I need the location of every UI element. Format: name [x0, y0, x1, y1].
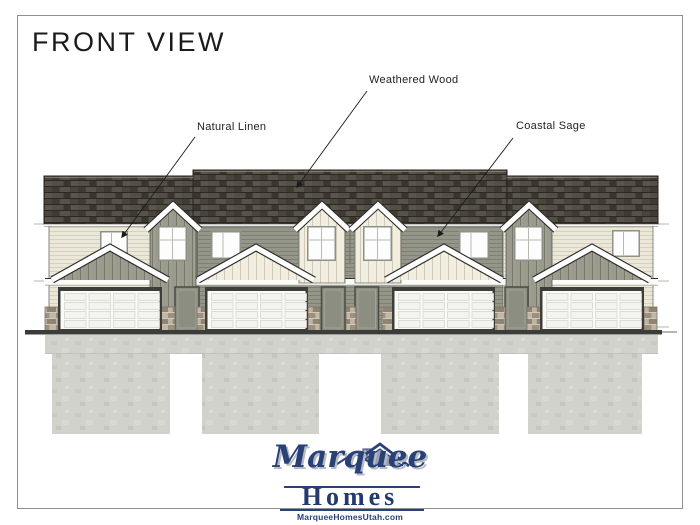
window-unit-4 [612, 230, 640, 257]
entry-door-unit-4 [505, 287, 528, 331]
garage-door-unit-2 [205, 287, 308, 331]
garage-door-unit-4 [540, 287, 644, 331]
garage-door-unit-3 [392, 287, 495, 331]
foundation-pads [45, 335, 658, 434]
drawing-sheet: FRONT VIEW Natural Linen Weathered Wood … [0, 0, 700, 525]
callout-label-weathered-wood: Weathered Wood [369, 74, 458, 86]
entry-door-unit-1 [175, 287, 199, 331]
logo-divider-bottom [280, 509, 424, 511]
entry-door-unit-2 [322, 287, 346, 331]
marquee-homes-logo: Marquee Homes MarqueeHomesUtah.com [240, 436, 460, 522]
logo-website: MarqueeHomesUtah.com [240, 512, 460, 522]
garage-door-unit-1 [58, 287, 162, 331]
roof-center [193, 170, 507, 224]
ground-line [25, 330, 677, 335]
callout-label-coastal-sage: Coastal Sage [516, 120, 586, 132]
logo-word: Homes [240, 484, 460, 510]
logo-name: Marquee [240, 442, 460, 473]
page-title: FRONT VIEW [32, 27, 226, 58]
entry-door-unit-3 [355, 287, 379, 331]
callout-label-natural-linen: Natural Linen [197, 121, 266, 133]
